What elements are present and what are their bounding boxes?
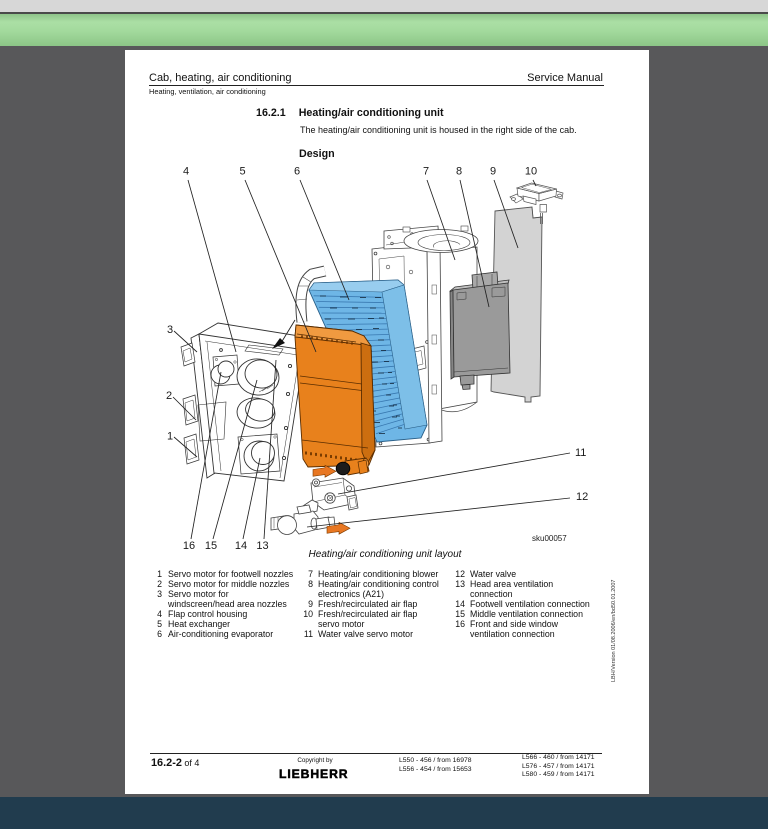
svg-text:3: 3 (167, 324, 173, 336)
svg-text:5: 5 (239, 166, 245, 178)
svg-text:15: 15 (205, 540, 217, 552)
svg-text:7: 7 (423, 166, 429, 178)
svg-text:10: 10 (525, 166, 537, 178)
svg-text:8: 8 (456, 166, 462, 178)
svg-text:6: 6 (294, 166, 300, 178)
svg-text:sku00057: sku00057 (532, 534, 567, 543)
svg-text:11: 11 (575, 447, 586, 459)
svg-text:12: 12 (576, 491, 588, 503)
svg-text:16: 16 (183, 540, 195, 552)
svg-text:1: 1 (167, 431, 173, 443)
svg-text:9: 9 (490, 166, 496, 178)
svg-text:14: 14 (235, 540, 247, 552)
svg-text:2: 2 (166, 390, 172, 402)
svg-text:4: 4 (183, 166, 189, 178)
